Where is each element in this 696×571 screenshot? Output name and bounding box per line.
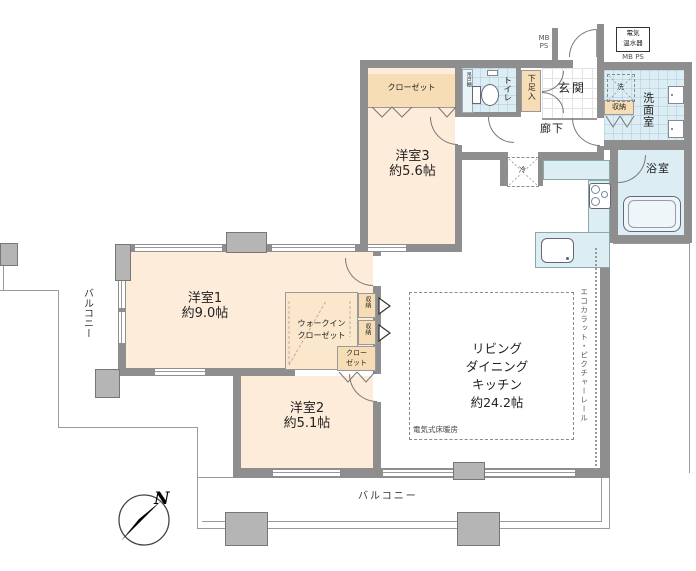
window — [272, 245, 355, 251]
washroom-label: 洗面室 — [641, 92, 654, 144]
wic-label-2: クローゼット — [286, 331, 357, 340]
water-heater-label-2: 温水器 — [617, 40, 649, 47]
wall — [604, 62, 692, 70]
side-boundary-line — [613, 243, 690, 244]
balcony-rail — [197, 427, 198, 529]
side-boundary-line — [689, 243, 690, 473]
toilet-tank — [472, 86, 481, 104]
bedroom3-label: 洋室3 約5.6帖 — [375, 150, 450, 180]
wall — [373, 402, 381, 478]
window — [119, 277, 125, 308]
wall — [455, 145, 462, 252]
balcony-rail — [601, 478, 602, 522]
storage-label: 収納 — [363, 323, 370, 335]
water-heater-label-1: 電気 — [617, 30, 649, 37]
storage-label: 収納 — [363, 296, 370, 308]
ldk-line1: リビング — [437, 340, 557, 358]
washroom-storage: 収納 — [604, 100, 634, 115]
washroom-cabinet — [668, 86, 684, 104]
balcony-rail — [58, 290, 59, 428]
burner-icon — [601, 191, 608, 198]
mb-ps-label: MB PS — [534, 34, 554, 50]
wall — [460, 152, 500, 160]
burner-icon — [591, 185, 600, 194]
pillar — [115, 244, 131, 281]
ecocarat-label: エコカラット・ピクチャーレール — [579, 288, 588, 458]
ldk-line2: ダイニング — [437, 358, 557, 376]
wall — [540, 152, 604, 160]
water-heater-box: 電気 温水器 — [616, 27, 650, 52]
shoe-cabinet-label: 下足入 — [527, 74, 536, 101]
storage-door-marks — [604, 115, 636, 130]
burner-icon — [591, 197, 600, 206]
front-door-leaf — [596, 29, 597, 57]
bedroom1-label: 洋室1 約9.0帖 — [160, 292, 250, 322]
ldk-label: リビング ダイニング キッチン 約24.2帖 — [437, 340, 557, 412]
balcony-rail — [197, 477, 237, 478]
washroom-door-arc — [572, 118, 600, 146]
wall — [360, 60, 573, 68]
pillar — [225, 512, 268, 546]
wall — [610, 140, 618, 243]
hanging-shelf-label: 吊戸棚 — [465, 72, 471, 87]
ps-label: PS — [534, 42, 554, 50]
north-letter: N — [153, 489, 171, 509]
window — [135, 245, 222, 251]
laundry-label: 洗 — [617, 83, 624, 91]
pillar — [457, 512, 500, 546]
storage-open-arrow-icon — [378, 323, 392, 343]
bedroom2-size: 約5.1帖 — [262, 417, 352, 432]
wall — [600, 243, 610, 478]
bathtub — [623, 196, 681, 232]
compass: N — [106, 482, 182, 558]
storage-box: 収納 — [358, 293, 376, 318]
wall — [597, 62, 604, 118]
handle-icon — [671, 94, 673, 96]
wall — [233, 368, 241, 478]
toilet-door-arc — [488, 117, 514, 143]
storage-open-arrow-icon — [378, 296, 392, 316]
balcony-bottom-label: バルコニー — [358, 491, 418, 503]
washroom-storage-label: 収納 — [605, 103, 633, 111]
pillar — [95, 369, 120, 398]
bathtub-inner — [628, 200, 676, 228]
bedroom3-size: 約5.6帖 — [375, 165, 450, 180]
front-door-arc — [569, 29, 597, 57]
floor-plan: クローゼット 下足入 吊戸棚 収納 ウォークイン クローゼット 収納 収納 — [0, 0, 696, 571]
balcony-rail — [58, 427, 198, 428]
fridge-label: 冷 — [519, 166, 526, 174]
bedroom1-name: 洋室1 — [160, 292, 250, 307]
ldk-line3: キッチン — [437, 376, 557, 394]
bathroom-label: 浴室 — [646, 163, 670, 176]
entrance-label: 玄関 — [558, 82, 586, 96]
wall — [684, 62, 692, 243]
wall — [373, 252, 381, 256]
pillar — [0, 243, 18, 266]
shoe-cabinet: 下足入 — [521, 70, 541, 112]
bedroom2-label: 洋室2 約5.1帖 — [262, 402, 352, 432]
window — [368, 245, 406, 251]
closet-bedroom2: クロー ゼット — [337, 346, 376, 371]
window — [485, 470, 575, 476]
balcony-left-label: バルコニー — [81, 288, 93, 348]
wall — [118, 368, 295, 376]
ldk-size: 約24.2帖 — [437, 394, 557, 412]
toilet-bowl — [481, 84, 499, 106]
pillar — [453, 462, 485, 480]
mbps-label: MB PS — [614, 53, 652, 61]
storage-box: 収納 — [358, 320, 376, 345]
toilet-panel — [487, 70, 498, 76]
fridge-space: 冷 — [507, 157, 539, 187]
pillar — [226, 232, 267, 253]
window — [119, 312, 125, 343]
closet-bedroom3: クローゼット — [368, 74, 455, 108]
window — [273, 470, 340, 476]
closet2-label-2: ゼット — [338, 359, 375, 367]
balcony-rail — [0, 290, 59, 291]
balcony-rail — [3, 266, 4, 291]
window — [383, 470, 453, 476]
bedroom2-name: 洋室2 — [262, 402, 352, 417]
kitchen-counter — [543, 160, 610, 180]
ecocarat-strip — [595, 248, 599, 470]
kitchen-sink — [541, 238, 574, 263]
handle-icon — [671, 128, 673, 130]
wall — [360, 60, 368, 252]
closet-label: クローゼット — [368, 83, 455, 92]
balcony-rail — [609, 478, 610, 529]
floor-heating-label: 電気式床暖房 — [413, 426, 458, 435]
toilet-label: トイレ — [501, 76, 511, 112]
bedroom1-size: 約9.0帖 — [160, 307, 250, 322]
hallway-label: 廊下 — [540, 123, 564, 136]
laundry-space: 洗 — [607, 74, 635, 102]
faucet-icon — [566, 257, 569, 260]
closet2-label-1: クロー — [338, 349, 375, 357]
window — [155, 369, 205, 375]
wic-label-1: ウォークイン — [286, 319, 357, 328]
bedroom3-name: 洋室3 — [375, 150, 450, 165]
mb-label: MB — [534, 34, 554, 42]
washroom-cabinet — [668, 120, 684, 138]
